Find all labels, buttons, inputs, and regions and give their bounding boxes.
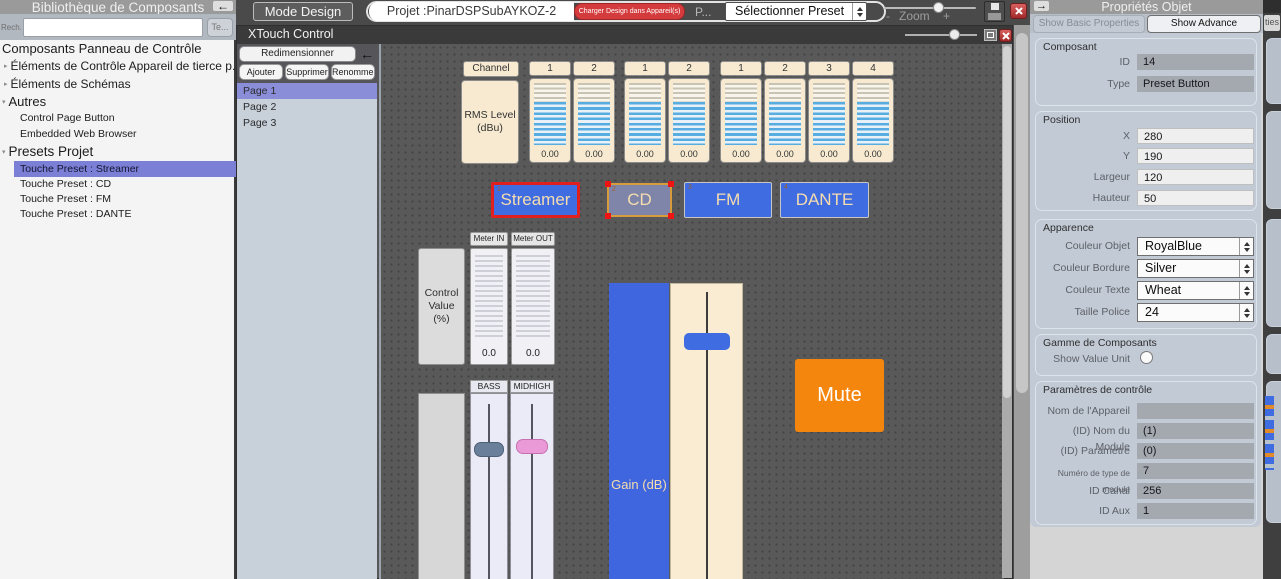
background-color-fragment <box>1265 396 1274 470</box>
show-value-unit-radio[interactable] <box>1140 351 1153 364</box>
expanded-arrow-icon: ▾ <box>2 149 6 156</box>
load-design-button[interactable]: Charger Design dans Appareil(s) <box>574 3 685 20</box>
preset-button-dante[interactable]: 4 DANTE <box>780 182 869 218</box>
tree-item-presets-projet[interactable]: ▾Presets Projet <box>0 144 236 159</box>
select-text-color[interactable]: Wheat <box>1137 281 1254 300</box>
tab-show-basic-properties[interactable]: Show Basic Properties <box>1033 15 1145 33</box>
xtouch-control-window: XTouch Control Redimensionner Panneau ← … <box>236 25 1013 579</box>
zoom-plus-button[interactable]: + <box>943 9 950 23</box>
rms-meter[interactable]: 10.00 <box>720 61 762 163</box>
window-vertical-scrollbar[interactable] <box>1002 44 1012 578</box>
midhigh-fader[interactable] <box>510 393 554 579</box>
field-parameter-id: (0) <box>1137 443 1254 459</box>
preset-number-tag: 2 <box>612 186 616 193</box>
channel-header-label: Channel <box>463 61 519 77</box>
meter-bar <box>516 255 550 338</box>
library-search-bar: Rech... Te... <box>0 14 236 40</box>
spinner-arrows-icon[interactable] <box>852 3 866 20</box>
tab-show-advance-properties[interactable]: Show Advance Properties <box>1147 15 1261 33</box>
group-gamme-composants: Gamme de Composants Show Value Unit <box>1035 334 1257 376</box>
meter-in[interactable]: 0.0 <box>470 248 508 365</box>
gain-fader-handle[interactable] <box>684 333 730 350</box>
search-label: Rech... <box>1 23 21 32</box>
library-search-input[interactable] <box>23 18 203 37</box>
properties-panel-title: Propriétés Objet <box>1030 0 1263 14</box>
bass-fader[interactable] <box>470 393 508 579</box>
select-border-color[interactable]: Silver <box>1137 259 1254 278</box>
mute-button[interactable]: Mute <box>795 359 884 432</box>
background-group-fragment <box>1266 219 1281 327</box>
pages-column: Redimensionner Panneau ← Ajouter Supprim… <box>237 44 377 579</box>
close-window-button[interactable] <box>999 29 1012 42</box>
spinner-arrows-icon[interactable] <box>1239 304 1253 321</box>
spinner-arrows-icon[interactable] <box>1239 282 1253 299</box>
rms-level-label: RMS Level (dBu) <box>461 80 519 164</box>
field-id: 14 <box>1137 54 1254 70</box>
preset-abbrev-label: P... <box>695 5 711 19</box>
meter-out-header: Meter OUT <box>511 232 555 246</box>
eq-label-box <box>418 393 465 579</box>
tree-item-composants-panneau[interactable]: Composants Panneau de Contrôle <box>0 41 236 56</box>
preset-button-cd-selected[interactable]: 2 CD <box>607 183 672 217</box>
preset-number-tag: 1 <box>497 186 501 193</box>
page-list-item-3[interactable]: Page 3 <box>237 115 377 131</box>
canvas-vertical-scrollbar[interactable] <box>1014 25 1030 579</box>
pages-toolbar: Redimensionner Panneau ← Ajouter Supprim… <box>237 44 377 83</box>
selection-handle[interactable] <box>605 181 611 187</box>
preset-number-tag: 3 <box>688 184 692 191</box>
background-group-fragment <box>1266 111 1281 209</box>
collapse-properties-button[interactable]: → <box>1033 0 1050 12</box>
top-toolbar: Mode Design Projet :PinarDSPSubAYKOZ-2 C… <box>236 0 1030 25</box>
component-library-panel: Bibliothèque de Composants ← Rech... Te.… <box>0 0 236 579</box>
midhigh-fader-handle[interactable] <box>516 439 548 454</box>
forward-arrow-icon: → <box>1036 0 1047 12</box>
page-list-item-2[interactable]: Page 2 <box>237 99 377 115</box>
field-type: Preset Button <box>1137 76 1254 92</box>
meter-bar <box>813 83 845 145</box>
meter-bar <box>725 83 757 145</box>
collapse-library-button[interactable]: ← <box>212 0 234 12</box>
zoom-slider-track[interactable] <box>884 7 976 9</box>
bass-fader-header: BASS <box>470 380 508 393</box>
field-channel-id: 256 <box>1137 483 1254 499</box>
bass-fader-handle[interactable] <box>474 442 504 457</box>
gain-label-box: Gain (dB) <box>609 283 669 579</box>
field-y[interactable]: 190 <box>1137 148 1254 164</box>
selection-handle[interactable] <box>668 181 674 187</box>
group-composant: Composant ID 14 Type Preset Button <box>1035 38 1257 106</box>
meter-in-header: Meter IN <box>470 232 508 246</box>
rms-meter[interactable]: 20.00 <box>573 61 615 163</box>
maximize-icon[interactable] <box>984 29 997 41</box>
group-apparence: Apparence Couleur Objet RoyalBlue Couleu… <box>1035 219 1257 329</box>
design-canvas[interactable]: Channel RMS Level (dBu) 10.00 20.00 10.0… <box>379 44 1004 579</box>
tree-item-touche-preset-fm[interactable]: Touche Preset : FM <box>0 193 236 205</box>
tree-item-autres[interactable]: ▾Autres <box>0 94 236 109</box>
meter-bar <box>534 83 566 145</box>
rms-meter[interactable]: 40.00 <box>852 61 894 163</box>
remove-page-button[interactable]: Supprimer <box>285 64 329 80</box>
field-device-name <box>1137 403 1254 419</box>
field-module-name-id: (1) <box>1137 423 1254 439</box>
background-tab-fragment: ties <box>1264 15 1280 31</box>
meter-bar <box>578 83 610 145</box>
rms-meter[interactable]: 10.00 <box>529 61 571 163</box>
meter-group-1: 10.00 20.00 <box>529 61 615 163</box>
window-slider-thumb[interactable] <box>949 29 960 40</box>
collapse-pages-arrow-icon[interactable]: ← <box>360 46 374 62</box>
meter-bar <box>475 255 503 338</box>
meter-group-2: 10.00 20.00 <box>624 61 710 163</box>
preset-select[interactable]: Sélectionner Preset <box>725 2 867 21</box>
search-text-button[interactable]: Te... <box>207 18 233 37</box>
xtouch-window-titlebar[interactable]: XTouch Control <box>237 26 1012 44</box>
project-name-label: Projet :PinarDSPSubAYKOZ-2 <box>369 2 574 21</box>
background-group-fragment <box>1266 334 1281 374</box>
preset-number-tag: 4 <box>784 184 788 191</box>
main-area: Mode Design Projet :PinarDSPSubAYKOZ-2 C… <box>236 0 1030 579</box>
mode-design-button[interactable]: Mode Design <box>253 2 353 21</box>
close-app-button[interactable] <box>1010 3 1027 19</box>
group-position: Position X 280 Y 190 Largeur 120 Hauteur… <box>1035 111 1257 211</box>
rms-meter[interactable]: 20.00 <box>764 61 806 163</box>
tree-item-elements-controle-tierce[interactable]: ▸Éléments de Contrôle Appareil de tierce… <box>0 59 236 73</box>
tree-item-touche-preset-dante[interactable]: Touche Preset : DANTE <box>0 208 236 220</box>
window-slider-track[interactable] <box>905 34 977 36</box>
back-arrow-icon: ← <box>217 0 229 13</box>
rms-meter[interactable]: 30.00 <box>808 61 850 163</box>
zoom-minus-button[interactable]: - <box>886 9 890 23</box>
field-width[interactable]: 120 <box>1137 169 1254 185</box>
background-group-fragment <box>1266 38 1281 104</box>
meter-bar <box>629 83 661 145</box>
library-panel-title: Bibliothèque de Composants <box>0 0 236 14</box>
background-window-edge: ties <box>1263 0 1281 579</box>
tree-item-touche-preset-cd[interactable]: Touche Preset : CD <box>0 178 236 190</box>
selection-handle[interactable] <box>668 213 674 219</box>
collapsed-arrow-icon: ▸ <box>4 63 8 70</box>
field-x[interactable]: 280 <box>1137 128 1254 144</box>
meter-bar <box>769 83 801 145</box>
scrollbar-thumb[interactable] <box>1016 33 1028 393</box>
scrollbar-thumb[interactable] <box>1003 46 1011 398</box>
zoom-label: Zoom <box>899 9 930 23</box>
gain-fader[interactable] <box>670 283 743 579</box>
selection-handle[interactable] <box>605 213 611 219</box>
meter-out[interactable]: 0.0 <box>511 248 555 365</box>
rms-meter[interactable]: 20.00 <box>668 61 710 163</box>
rms-meter[interactable]: 10.00 <box>624 61 666 163</box>
spinner-arrows-icon[interactable] <box>1239 238 1253 255</box>
preset-button-fm[interactable]: 3 FM <box>684 182 772 218</box>
midhigh-fader-header: MIDHIGH <box>510 380 554 393</box>
object-properties-panel: Propriétés Objet → Show Basic Properties… <box>1030 0 1263 579</box>
field-aux-id: 1 <box>1137 503 1254 519</box>
tree-item-embedded-web-browser[interactable]: Embedded Web Browser <box>0 128 236 140</box>
preset-button-streamer[interactable]: 1 Streamer <box>491 182 580 218</box>
app-window: Bibliothèque de Composants ← Rech... Te.… <box>0 0 1281 579</box>
tree-item-elements-schemas[interactable]: ▸Éléments de Schémas <box>0 77 236 91</box>
page-list-item-1[interactable]: Page 1 <box>237 83 377 99</box>
control-value-label: Control Value (%) <box>418 248 465 365</box>
tree-item-control-page-button[interactable]: Control Page Button <box>0 112 236 124</box>
group-parametres-controle: Paramètres de contrôle Nom de l'Appareil… <box>1035 381 1257 525</box>
spinner-arrows-icon[interactable] <box>1239 260 1253 277</box>
field-module-type-number: 7 <box>1137 463 1254 479</box>
field-height[interactable]: 50 <box>1137 190 1254 206</box>
select-object-color[interactable]: RoyalBlue <box>1137 237 1254 256</box>
add-page-button[interactable]: Ajouter <box>239 64 283 80</box>
meter-bar <box>857 83 889 145</box>
collapsed-arrow-icon: ▸ <box>4 81 8 88</box>
tree-item-touche-preset-streamer[interactable]: Touche Preset : Streamer <box>14 161 236 177</box>
expanded-arrow-icon: ▾ <box>2 99 6 106</box>
rename-page-button[interactable]: Renommer <box>331 64 375 80</box>
resize-panel-button[interactable]: Redimensionner Panneau <box>239 46 356 62</box>
meter-group-3: 10.00 20.00 30.00 40.00 <box>720 61 894 163</box>
select-font-size[interactable]: 24 <box>1137 303 1254 322</box>
meter-bar <box>673 83 705 145</box>
save-icon[interactable] <box>984 1 1005 22</box>
background-window-titlebar-fragment <box>1263 0 1281 13</box>
